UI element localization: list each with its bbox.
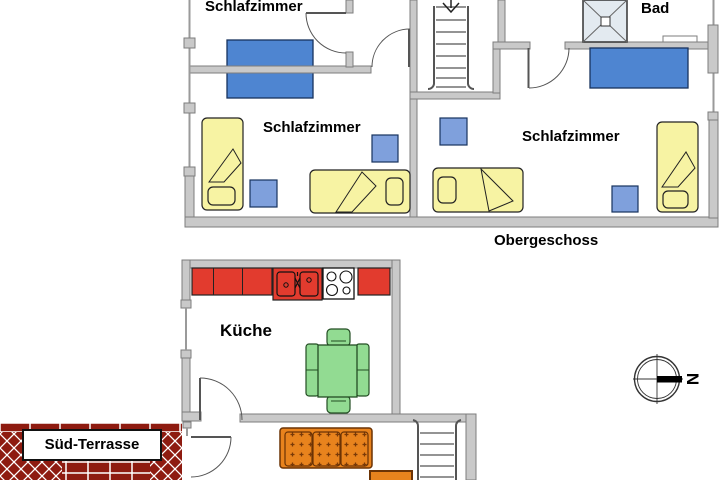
burner [343,287,350,294]
shower [583,0,627,42]
label-bedroom-top: Schlafzimmer [205,0,303,16]
nightstand [250,180,277,207]
stove [323,268,354,299]
window-sash [181,350,191,358]
wall-right-outer [709,118,718,218]
label-bedroom-left: Schlafzimmer [263,120,361,137]
wall-kitchen-left-1 [182,260,190,302]
window-sash [184,38,195,48]
window-sash [183,422,191,428]
wall-stairwell-bottom [410,92,500,99]
wall-kitchen-left-2 [182,358,190,414]
wall-bottom-outer [185,217,718,227]
pillow [663,191,688,208]
stair-rail [468,6,474,89]
label-bathroom: Bad [641,1,669,18]
compass-north-pointer [657,376,682,383]
stair-rail [456,420,461,480]
coffee-table [370,471,412,480]
pillow [438,177,456,203]
label-kitchen: Küche [220,322,272,341]
window-sash [708,112,718,120]
wall-kitchen-corner [182,412,201,421]
wall-top-bedroom-v2 [346,52,353,67]
burner [340,271,352,283]
wall-kitchen-right [392,260,400,422]
compass-north-label: N [681,368,703,390]
wall-bedroom-divider-v [410,0,417,217]
window-sill-ledge [663,36,697,42]
cabinet-run [192,268,272,295]
stair-steps [436,7,466,87]
cabinet [358,268,390,295]
wall-living-top [240,414,476,422]
stair-rail [413,420,418,480]
burner [327,285,338,296]
wall-bath-left [498,0,505,42]
shower-drain [601,17,610,26]
sofa-cushion [313,432,340,466]
label-bedroom-right: Schlafzimmer [522,129,620,146]
door-swing-arc [372,29,410,67]
bed [433,168,523,212]
stair-steps [420,433,454,477]
burner [327,272,336,281]
stair-rail [428,6,434,89]
sofa-cushion [285,432,312,466]
window-sash [184,167,195,176]
bed [657,122,698,212]
wall-kitchen-top [182,260,400,268]
dining-table [318,345,357,397]
nightstand [440,118,467,145]
nightstand [372,135,398,162]
label-upper-floor: Obergeschoss [494,233,598,250]
wall-bedroom-divider-h [190,66,371,73]
wall-bath-jog [493,42,530,49]
floor-plan-page: Schlafzimmer Bad Schlafzimmer Schlafzimm… [0,0,720,480]
window-sash [184,103,195,113]
kitchen-sink [273,268,322,300]
dining-set [306,329,369,413]
sofa-cushion [341,432,368,466]
floor-plan-drawing [0,0,720,480]
stairs-upper [428,0,474,89]
bed [310,170,410,213]
double-bed [590,48,688,88]
compass [633,354,683,404]
wall-stairs-right [466,414,476,480]
bed [202,118,243,210]
pillow [386,178,403,205]
nightstand [612,186,638,212]
stairs-lower [413,420,461,480]
ground-floor-doors [191,378,242,477]
chair [327,329,350,346]
upper-floor-doors [306,13,569,88]
chair [327,396,350,413]
wall-stairwell-right [493,49,500,93]
door-swing-arc [191,437,231,477]
pillow [208,187,235,205]
terrace-label-box: Süd-Terrasse [22,429,162,461]
door-swing-arc [529,48,569,88]
wall-top-bedroom-v1 [346,0,353,13]
sofa [280,428,372,468]
window-sash [708,25,718,73]
kitchen-counter [192,268,390,300]
label-terrace: Süd-Terrasse [45,437,140,454]
door-swing-arc [200,378,242,420]
window-sash [181,300,191,308]
